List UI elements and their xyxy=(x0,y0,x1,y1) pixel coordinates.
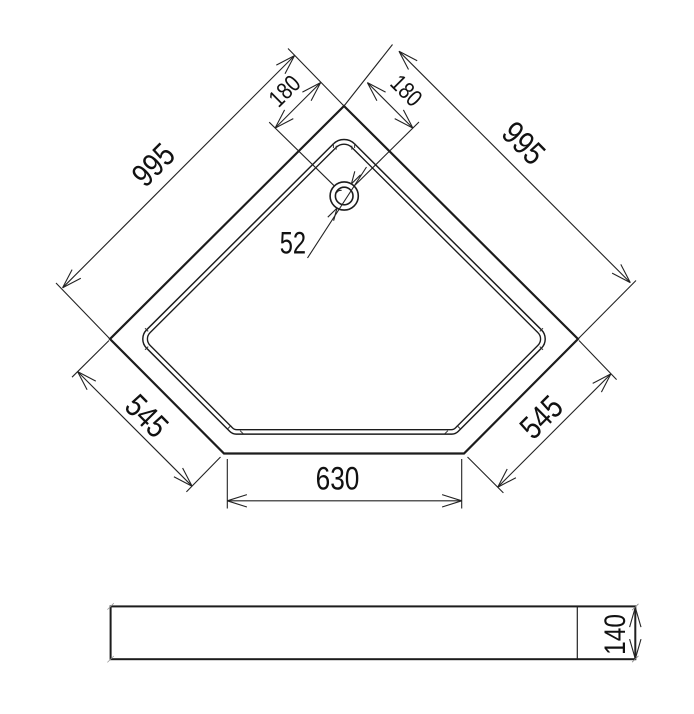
svg-text:180: 180 xyxy=(385,69,428,112)
svg-text:52: 52 xyxy=(280,225,306,260)
svg-text:630: 630 xyxy=(316,462,360,497)
svg-text:995: 995 xyxy=(125,137,182,194)
svg-text:180: 180 xyxy=(263,70,306,113)
svg-text:545: 545 xyxy=(513,389,570,446)
svg-text:995: 995 xyxy=(494,115,551,172)
svg-text:140: 140 xyxy=(598,614,632,655)
